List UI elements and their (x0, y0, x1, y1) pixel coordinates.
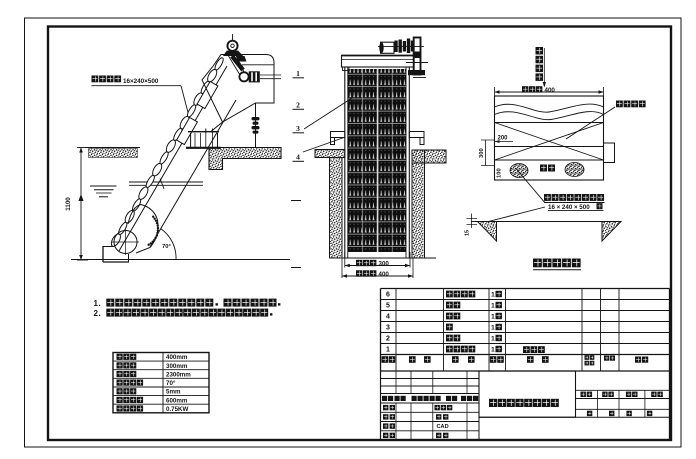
svg-text:1: 1 (491, 292, 495, 299)
svg-text:1: 1 (491, 303, 495, 310)
svg-text:16×240×500: 16×240×500 (123, 78, 159, 85)
svg-text:400: 400 (545, 87, 556, 94)
svg-text:3: 3 (296, 124, 300, 133)
svg-text:300mm: 300mm (166, 363, 188, 370)
svg-text:.: . (99, 309, 101, 318)
svg-text:1: 1 (491, 336, 495, 343)
svg-text:5: 5 (386, 303, 390, 310)
svg-text:1: 1 (491, 325, 495, 332)
svg-text:70°: 70° (166, 380, 176, 387)
svg-text:15: 15 (465, 230, 471, 236)
svg-text:1100: 1100 (65, 197, 72, 211)
svg-text:70°: 70° (162, 244, 171, 250)
svg-text:400mm: 400mm (166, 354, 188, 361)
svg-text:100: 100 (497, 168, 503, 178)
svg-text:.: . (99, 299, 101, 308)
svg-text:1: 1 (386, 347, 390, 354)
svg-text:300: 300 (479, 148, 485, 158)
svg-text:4: 4 (296, 153, 300, 162)
svg-text:5mm: 5mm (166, 389, 181, 396)
svg-text:1: 1 (491, 314, 495, 321)
svg-text:16 × 240 × 500: 16 × 240 × 500 (548, 204, 590, 211)
svg-text:CAD: CAD (437, 424, 449, 430)
svg-text:600mm: 600mm (166, 397, 188, 404)
svg-text:0.75KW: 0.75KW (166, 406, 189, 413)
svg-text:300: 300 (379, 261, 390, 268)
svg-text:1: 1 (491, 347, 495, 354)
svg-text:4: 4 (386, 314, 390, 321)
svg-text:3: 3 (386, 325, 390, 332)
svg-text:1: 1 (296, 69, 300, 78)
svg-text:6: 6 (386, 292, 390, 299)
svg-text:400: 400 (379, 271, 390, 278)
svg-text:2300mm: 2300mm (166, 371, 191, 378)
svg-text:2: 2 (386, 336, 390, 343)
svg-text:2: 2 (296, 101, 300, 110)
